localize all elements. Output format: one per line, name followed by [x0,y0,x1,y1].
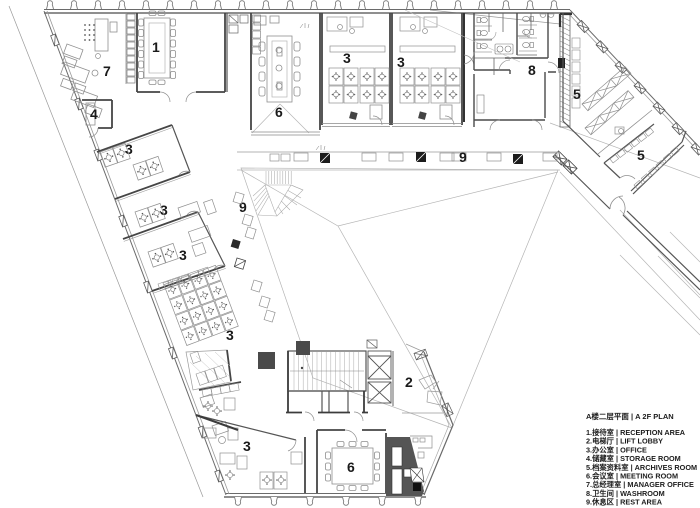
svg-text:8: 8 [528,62,536,78]
svg-text:2.电梯厅 | LIFT LOBBY: 2.电梯厅 | LIFT LOBBY [586,437,663,446]
svg-text:9.休息区 | REST AREA: 9.休息区 | REST AREA [586,498,663,507]
svg-text:4.储藏室 | STORAGE ROOM: 4.储藏室 | STORAGE ROOM [586,454,681,463]
svg-text:6.会议室 | MEETING ROOM: 6.会议室 | MEETING ROOM [586,472,678,481]
svg-text:4: 4 [90,106,98,122]
svg-text:3: 3 [243,438,251,454]
svg-text:5: 5 [637,147,645,163]
svg-text:7.总经理室 | MANAGER OFFICE: 7.总经理室 | MANAGER OFFICE [586,480,694,489]
svg-text:3: 3 [397,54,405,70]
svg-text:3: 3 [179,247,187,263]
svg-text:3.办公室 | OFFICE: 3.办公室 | OFFICE [586,445,647,454]
svg-text:6: 6 [275,104,283,120]
svg-text:A楼二层平面 | A 2F PLAN: A楼二层平面 | A 2F PLAN [586,411,674,421]
svg-text:1.接待室 | RECEPTION AREA: 1.接待室 | RECEPTION AREA [586,428,686,437]
svg-text:6: 6 [347,459,355,475]
svg-text:8.卫生间 | WASHROOM: 8.卫生间 | WASHROOM [586,489,665,498]
svg-text:7: 7 [103,63,111,79]
svg-text:9: 9 [459,149,467,165]
svg-text:9: 9 [239,199,247,215]
svg-text:2: 2 [405,374,413,390]
svg-text:5.档案资料室 | ARCHIVES ROOM: 5.档案资料室 | ARCHIVES ROOM [586,463,697,472]
svg-text:1: 1 [152,39,160,55]
svg-text:3: 3 [343,50,351,66]
svg-text:5: 5 [573,86,581,102]
